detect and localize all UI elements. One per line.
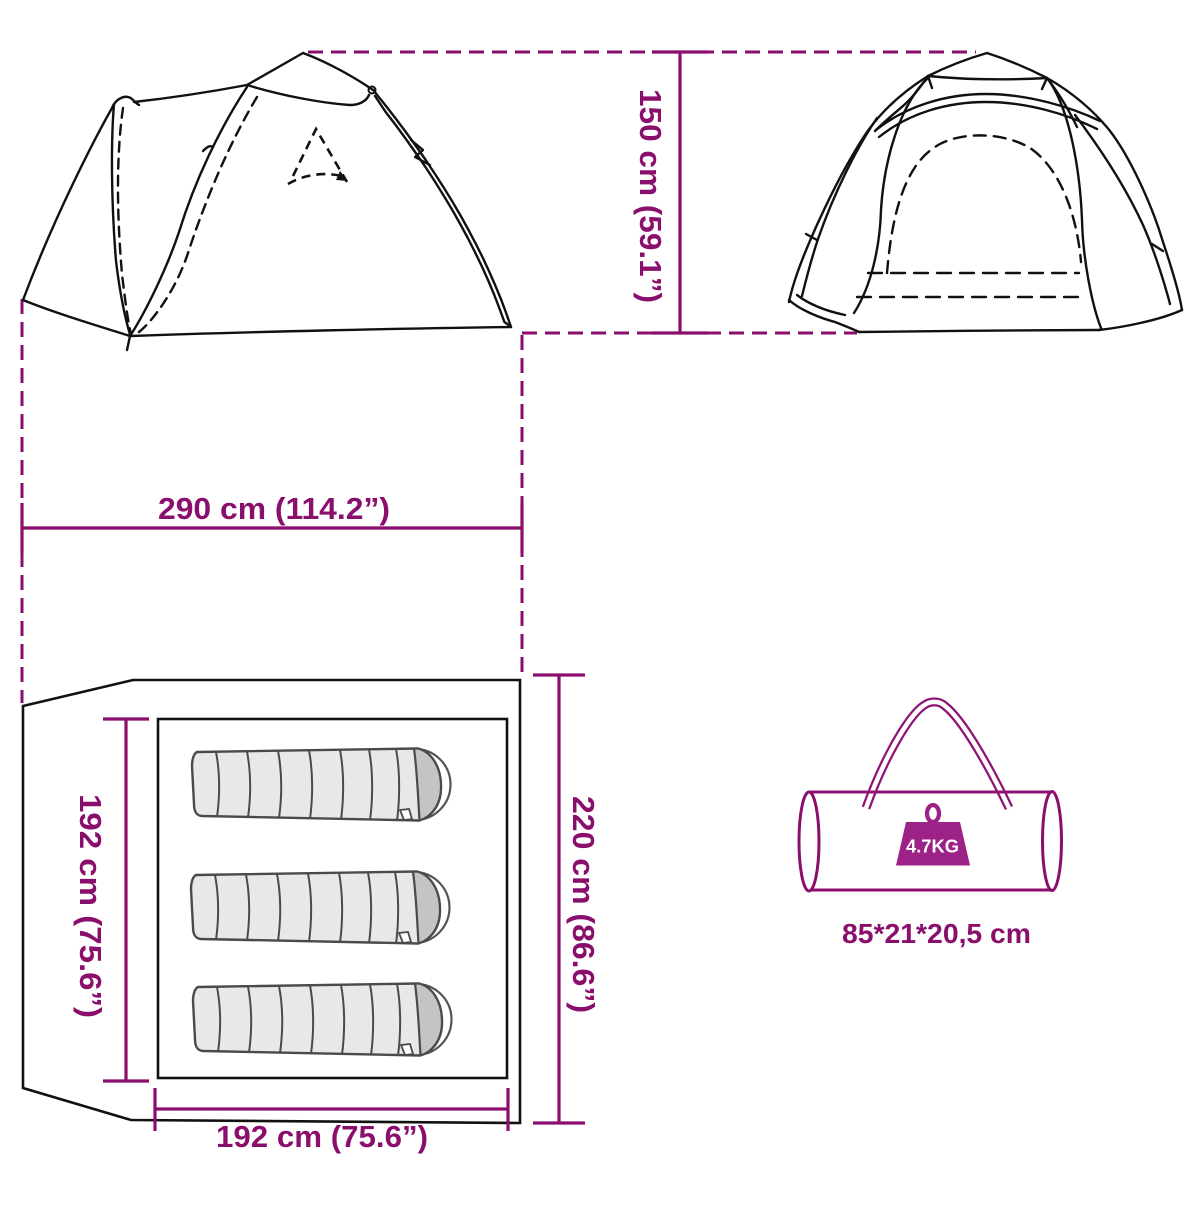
svg-text:290 cm (114.2”): 290 cm (114.2”) [158, 491, 390, 526]
svg-text:4.7KG: 4.7KG [906, 836, 959, 857]
svg-text:192 cm (75.6”): 192 cm (75.6”) [216, 1119, 428, 1154]
svg-text:220 cm (86.6”): 220 cm (86.6”) [566, 796, 601, 1013]
svg-text:192 cm (75.6”): 192 cm (75.6”) [73, 794, 108, 1018]
svg-text:150 cm (59.1”): 150 cm (59.1”) [633, 89, 668, 303]
svg-text:85*21*20,5 cm: 85*21*20,5 cm [842, 918, 1031, 949]
